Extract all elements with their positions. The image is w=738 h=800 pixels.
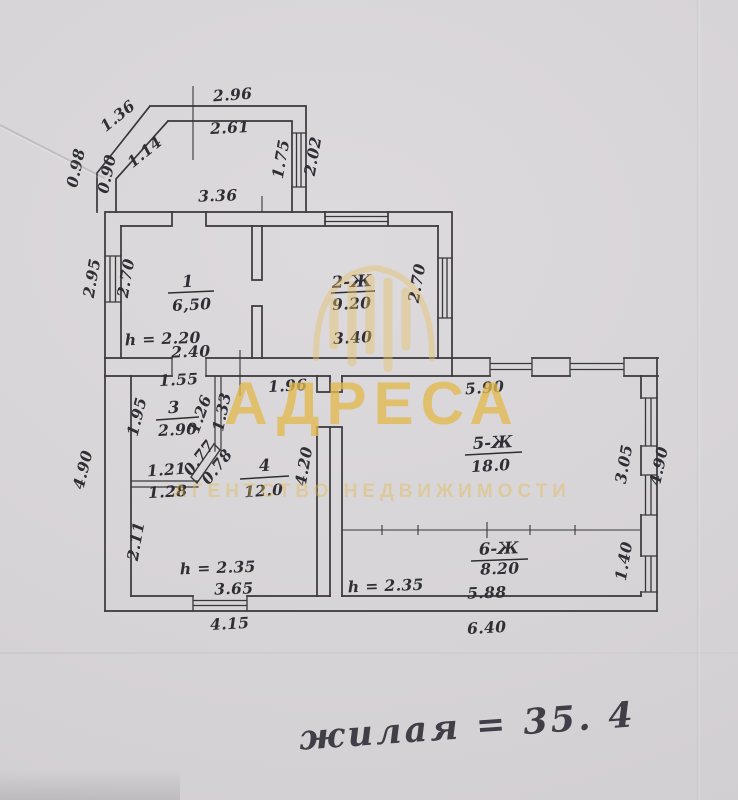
dim-porch-diag-inner: 1.14 xyxy=(123,132,166,172)
dim-room5-right-inner: 3.05 xyxy=(611,443,637,485)
floor-plan-drawing: 2.96 2.61 1.36 1.14 0.98 0.90 1.75 2.02 … xyxy=(0,0,738,800)
dimension-labels: 2.96 2.61 1.36 1.14 0.98 0.90 1.75 2.02 … xyxy=(62,84,672,638)
window-room6-right xyxy=(641,556,657,592)
window-room2-right xyxy=(438,258,452,318)
watermark-subtitle: АГЕНТСТВО НЕДВИЖИМОСТИ xyxy=(173,481,571,502)
dim-room1-left-inner: 2.70 xyxy=(113,257,139,300)
handwritten-living-area-note: жилая = 35. 4 xyxy=(297,694,636,758)
dim-room4-bottom-inner: 3.65 xyxy=(214,578,254,598)
divider-room5-room6 xyxy=(342,522,640,538)
dim-right-outer: 4.90 xyxy=(645,445,672,487)
room3-area: 2.90 xyxy=(157,419,198,440)
dim-room3-left: 1.95 xyxy=(123,395,151,438)
dim-room4-left: 2.11 xyxy=(123,520,149,563)
wall-partition-room1-room2 xyxy=(252,226,262,358)
room5-area: 18.0 xyxy=(471,455,511,476)
room6-number: 6-Ж xyxy=(478,538,519,558)
room1-area: 6,50 xyxy=(172,294,212,315)
room4-height: h = 2.35 xyxy=(179,557,256,579)
room3-number: 3 xyxy=(167,398,179,418)
room4-number: 4 xyxy=(258,456,271,476)
dim-room6-bottom-inner: 5.88 xyxy=(467,582,507,602)
dim-porch-right-inner: 1.75 xyxy=(268,138,294,180)
window-room5-right-a xyxy=(641,398,657,446)
dim-porch-top-outer: 2.96 xyxy=(211,84,253,106)
room6-height: h = 2.35 xyxy=(347,575,424,597)
dim-room3-top: 1.55 xyxy=(159,369,199,390)
window-room2-top xyxy=(325,217,388,222)
dim-room1-left-outer: 2.95 xyxy=(79,257,105,300)
scanned-floor-plan-page: 2.96 2.61 1.36 1.14 0.98 0.90 1.75 2.02 … xyxy=(0,0,738,800)
watermark: АДРЕСА АГЕНТСТВО НЕДВИЖИМОСТИ xyxy=(173,268,571,502)
room6-area: 8.20 xyxy=(480,558,520,578)
room1-number: 1 xyxy=(181,272,193,292)
wall-topblock-top-inner xyxy=(121,212,438,226)
window-room5-top-b xyxy=(570,358,624,376)
dim-left-outer: 4.90 xyxy=(69,448,97,491)
watermark-title: АДРЕСА xyxy=(224,370,520,437)
dim-bottom-left-outer: 4.15 xyxy=(210,613,250,634)
dim-bottom-right-outer: 6.40 xyxy=(467,617,507,638)
dim-porch-left-outer: 0.98 xyxy=(62,147,89,189)
dim-room6-right: 1.40 xyxy=(611,540,637,582)
room1-height: h = 2.20 xyxy=(124,328,201,350)
dim-porch-top-inner: 2.61 xyxy=(209,117,250,138)
dim-porch-right-outer: 2.02 xyxy=(300,135,326,178)
dim-porch-bottom: 3.36 xyxy=(198,185,238,205)
